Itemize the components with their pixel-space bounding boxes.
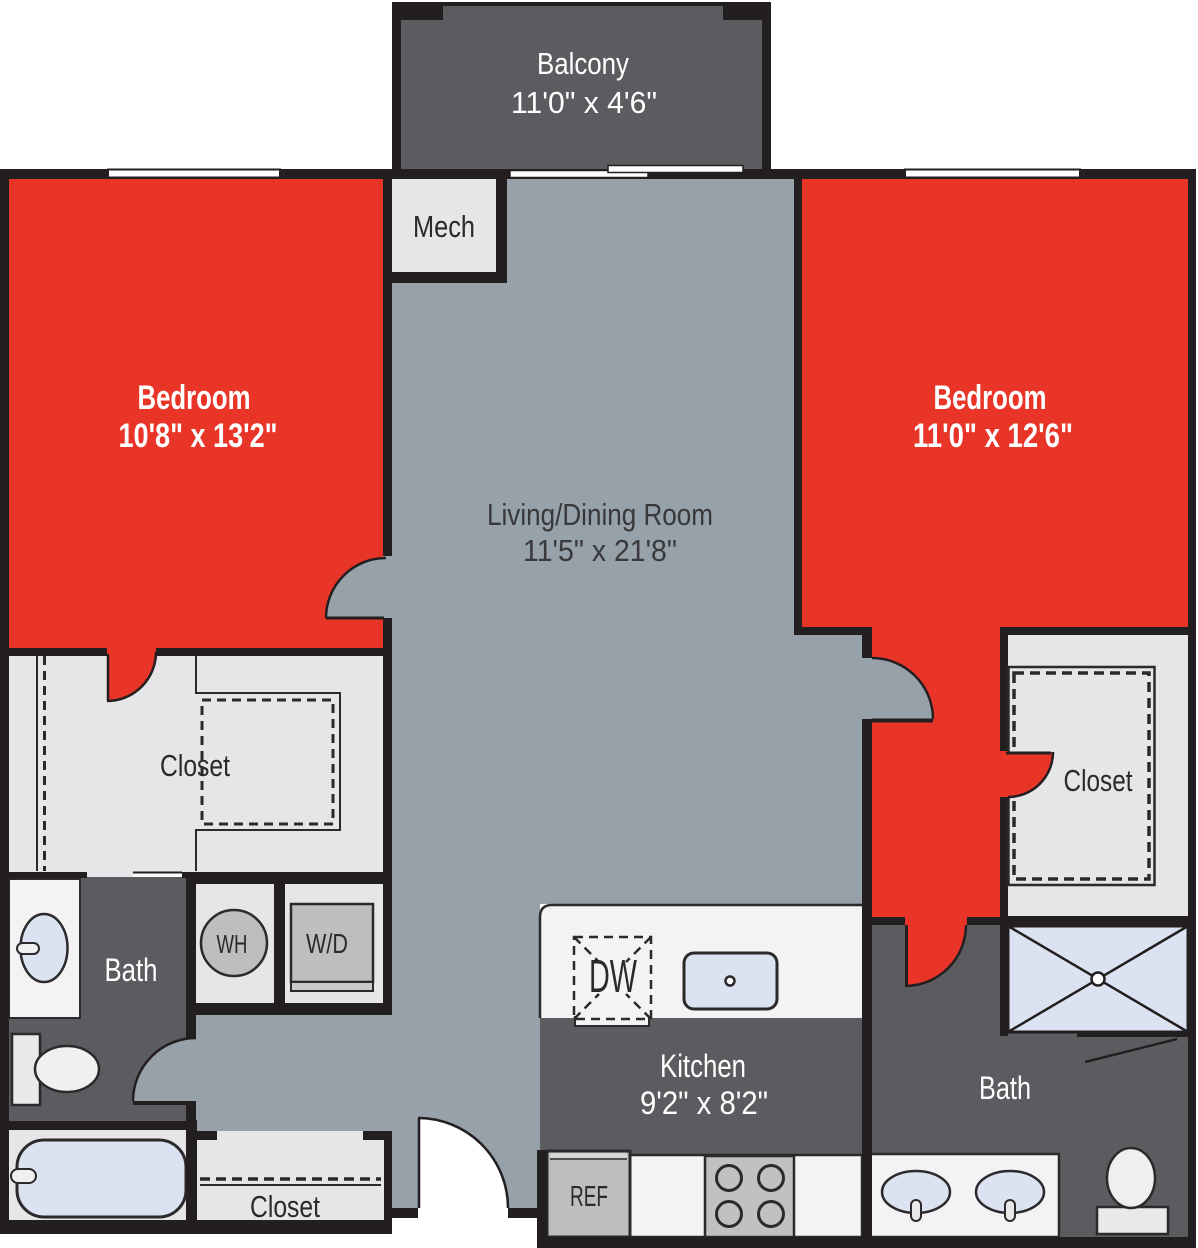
svg-text:Balcony: Balcony (537, 46, 629, 81)
svg-text:W/D: W/D (306, 928, 348, 959)
svg-text:WH: WH (217, 929, 248, 959)
svg-text:Closet: Closet (1064, 763, 1133, 798)
svg-text:11'5" x 21'8": 11'5" x 21'8" (523, 533, 677, 568)
svg-text:REF: REF (570, 1181, 608, 1213)
svg-text:Bedroom: Bedroom (934, 379, 1047, 417)
svg-text:Bedroom: Bedroom (138, 379, 251, 417)
svg-text:Bath: Bath (105, 952, 158, 988)
svg-text:Living/Dining Room: Living/Dining Room (487, 497, 713, 532)
svg-text:Kitchen: Kitchen (660, 1048, 746, 1084)
svg-text:Closet: Closet (250, 1189, 320, 1224)
svg-text:9'2" x 8'2": 9'2" x 8'2" (640, 1085, 768, 1121)
svg-text:11'0" x 12'6": 11'0" x 12'6" (913, 417, 1073, 455)
svg-text:Bath: Bath (979, 1070, 1031, 1106)
svg-text:Closet: Closet (160, 748, 230, 783)
svg-text:11'0" x 4'6": 11'0" x 4'6" (511, 85, 657, 120)
svg-text:10'8" x 13'2": 10'8" x 13'2" (119, 417, 278, 455)
svg-text:DW: DW (589, 950, 637, 1002)
svg-text:Mech: Mech (413, 209, 475, 244)
